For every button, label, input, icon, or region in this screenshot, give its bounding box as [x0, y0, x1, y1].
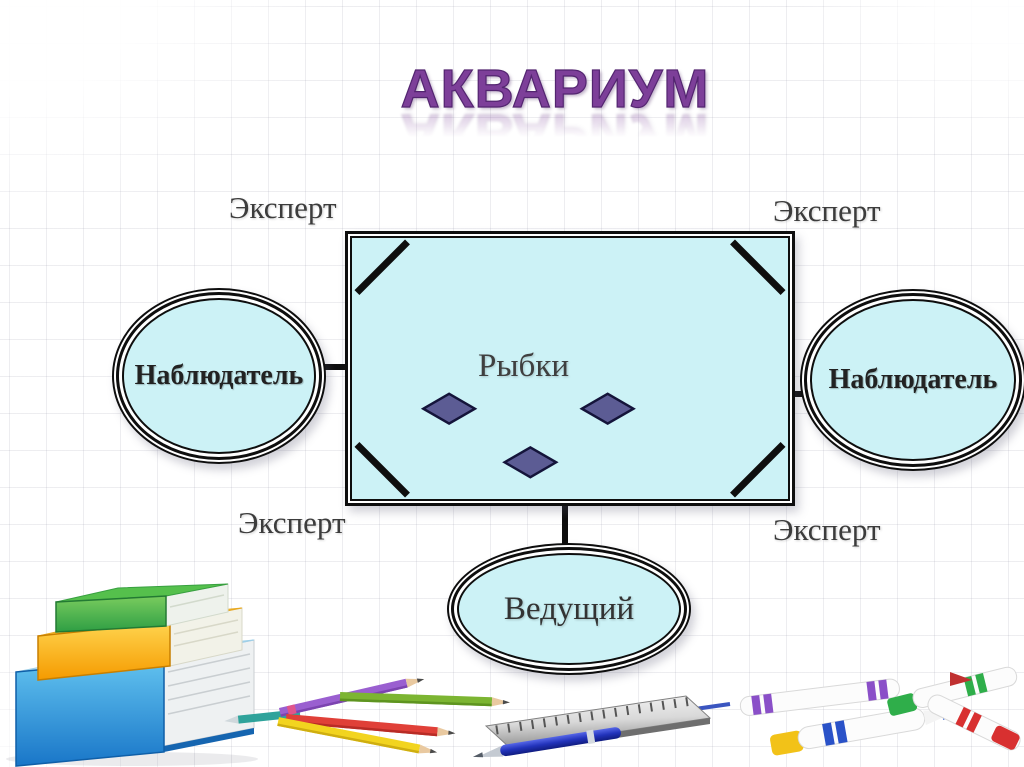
expert-label-bottom-left: Эксперт [238, 505, 346, 541]
fishbowl-overlay [352, 238, 788, 499]
observer-label-left: Наблюдатель [135, 360, 304, 392]
slide-background: АКВАРИУМ АКВАРИУМ Эксперт Эксперт Экспер… [0, 0, 1024, 767]
fish-diamond-icon [423, 394, 475, 424]
observer-ellipse-right: Наблюдатель [800, 289, 1024, 471]
title-reflection: АКВАРИУМ [0, 106, 1024, 160]
white-markers-icon [628, 660, 1024, 767]
expert-label-top-left: Эксперт [229, 190, 337, 226]
host-label: Ведущий [504, 591, 634, 628]
fishbowl-box: Рыбки [345, 231, 795, 506]
expert-label-bottom-right: Эксперт [773, 512, 881, 548]
corner-mark-icon [733, 242, 784, 293]
corner-mark-icon [733, 444, 784, 495]
fishbowl-box-inner: Рыбки [350, 236, 790, 501]
fish-diamond-icon [505, 447, 557, 477]
host-ellipse: Ведущий [447, 543, 691, 675]
observer-label-right: Наблюдатель [829, 364, 998, 396]
title-block: АКВАРИУМ АКВАРИУМ [0, 62, 1024, 160]
fishbowl-label: Рыбки [478, 348, 569, 385]
corner-mark-icon [357, 444, 408, 495]
observer-ellipse-left: Наблюдатель [112, 288, 326, 464]
expert-label-top-right: Эксперт [773, 193, 881, 229]
fish-diamond-icon [582, 394, 634, 424]
corner-mark-icon [357, 242, 408, 293]
